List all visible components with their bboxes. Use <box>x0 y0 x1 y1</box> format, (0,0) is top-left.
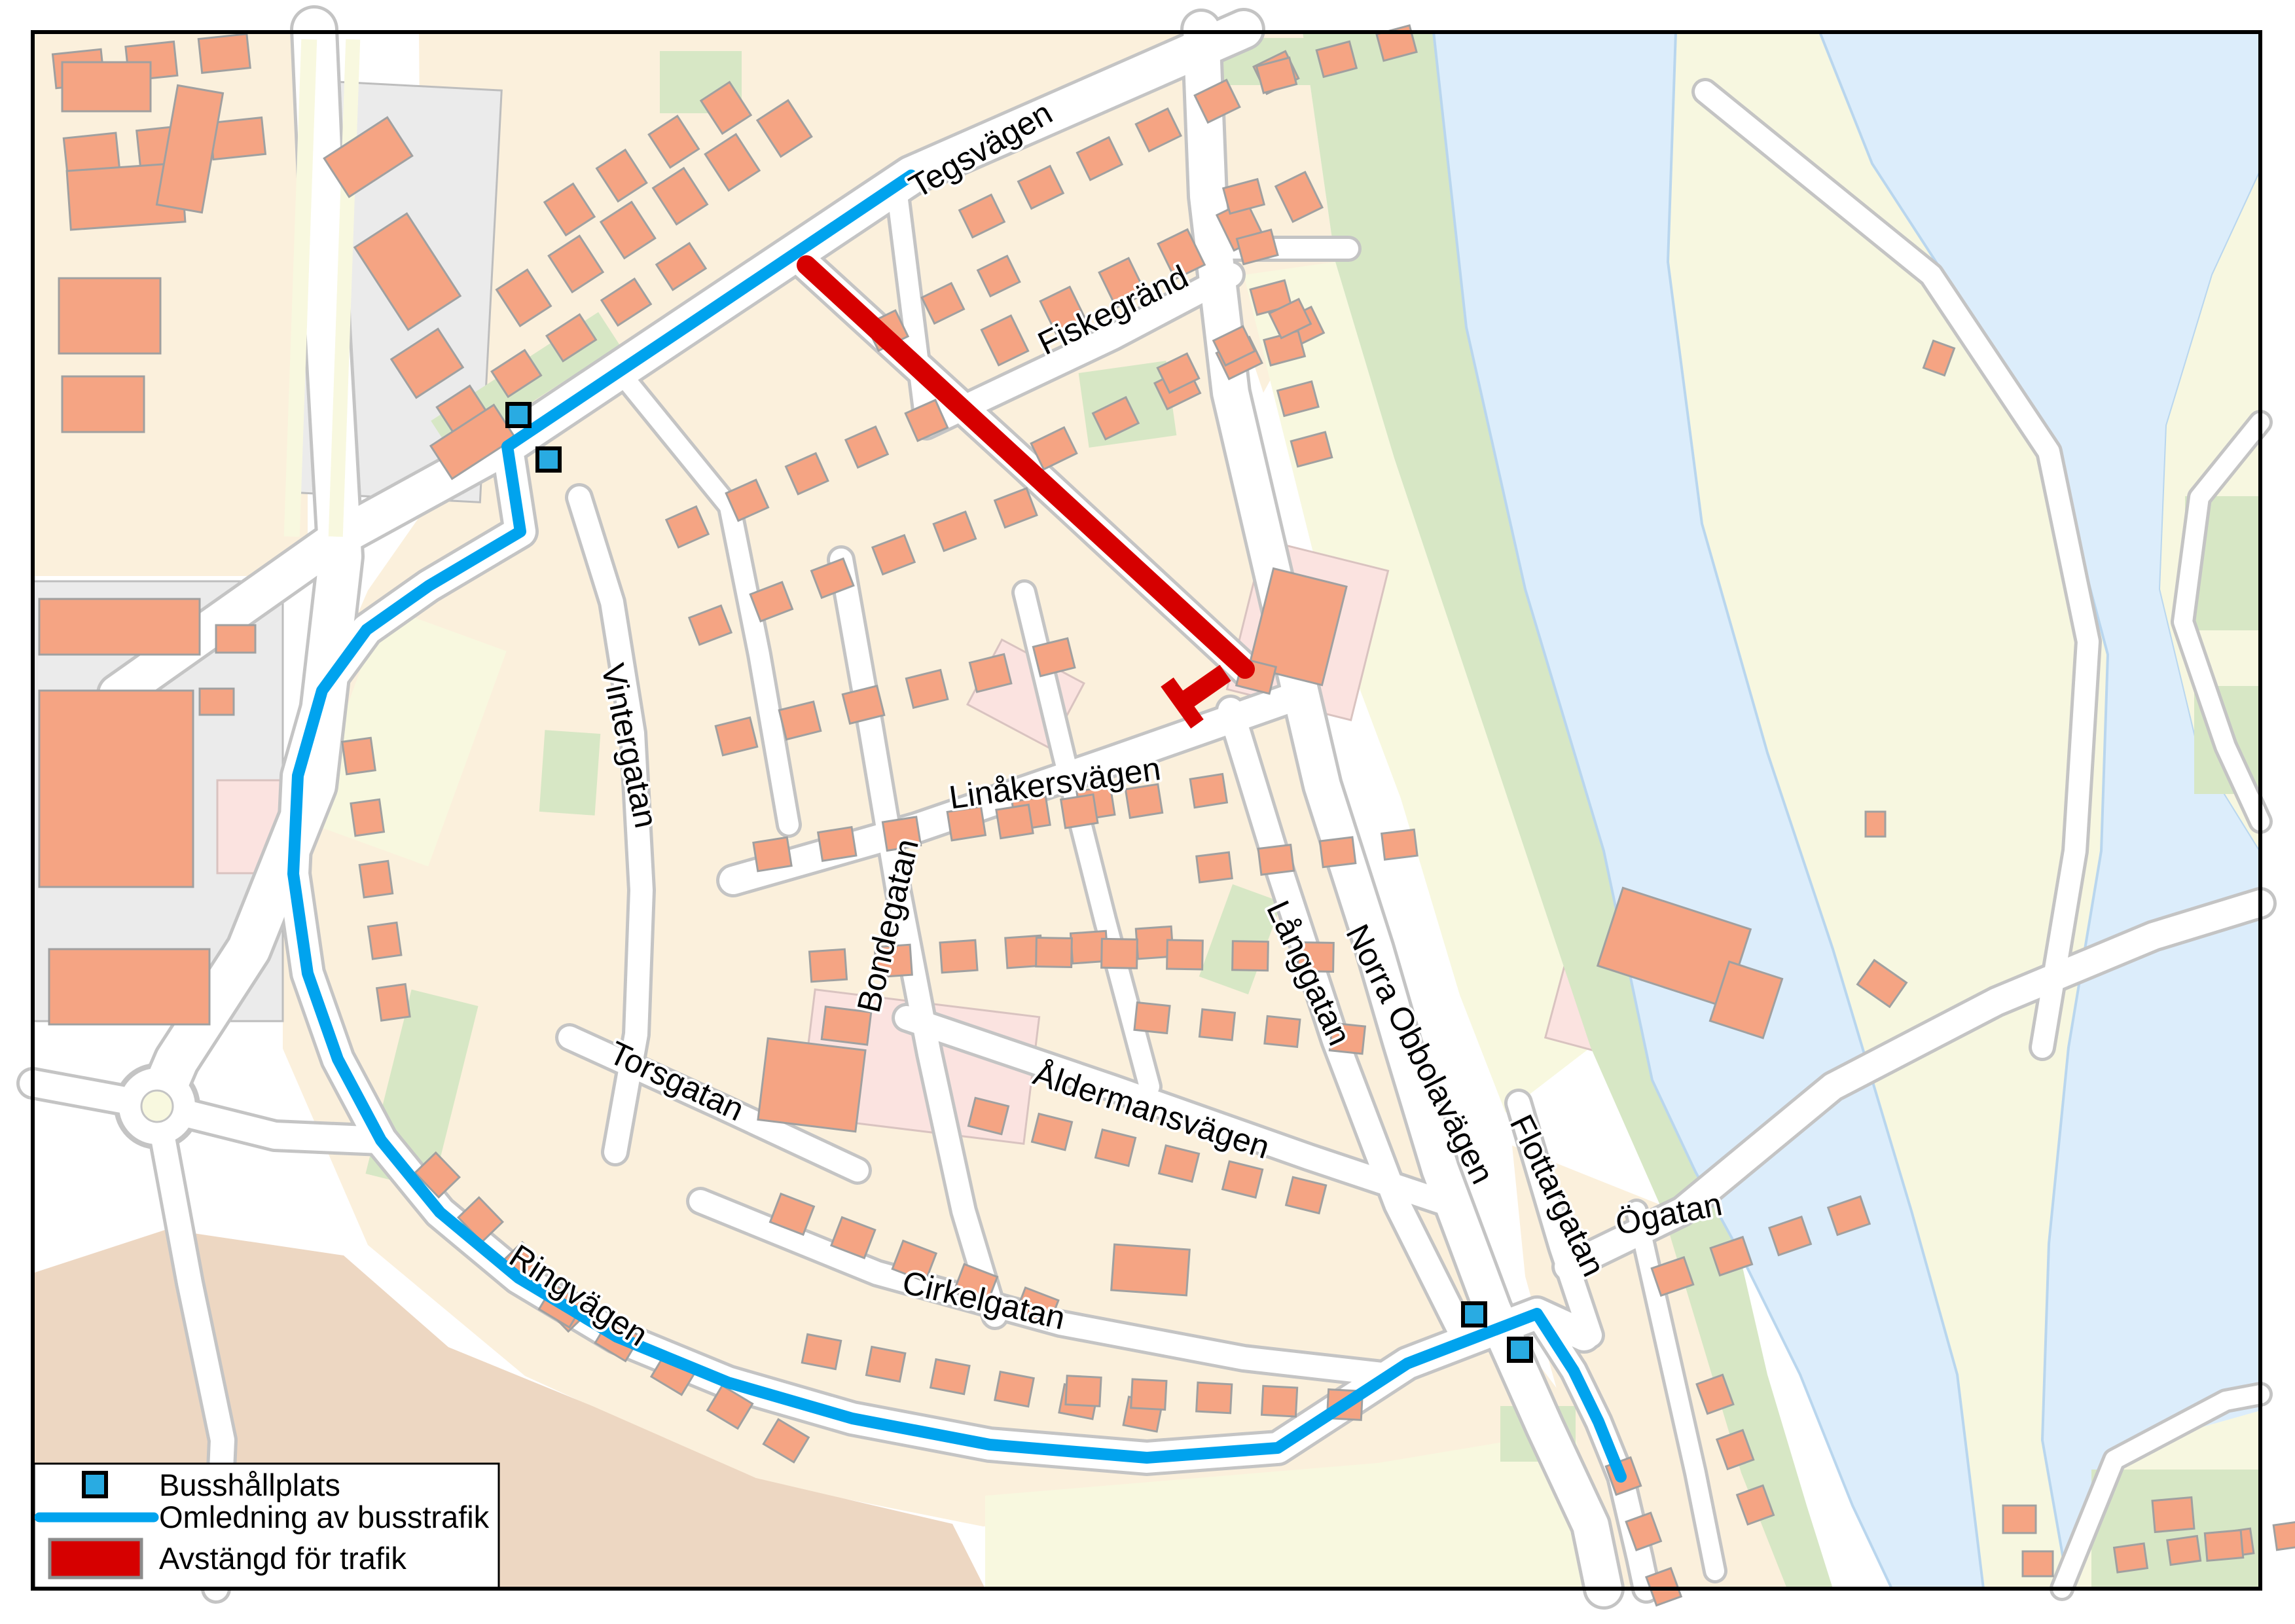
building <box>1134 1003 1170 1034</box>
building <box>1261 1386 1297 1416</box>
legend-item-label: Avstängd för trafik <box>159 1541 407 1576</box>
building <box>200 689 234 715</box>
building <box>2003 1506 2036 1533</box>
building <box>940 940 977 973</box>
building <box>818 827 856 861</box>
building <box>1131 1379 1166 1410</box>
building <box>866 1347 905 1382</box>
building <box>1102 939 1138 968</box>
building <box>1382 829 1418 859</box>
building <box>931 1360 969 1394</box>
building <box>342 738 376 774</box>
bus-stop-marker <box>1509 1339 1531 1361</box>
building <box>1167 940 1203 969</box>
green-area <box>539 730 601 816</box>
building <box>1066 1376 1101 1407</box>
building <box>359 861 393 897</box>
roundabout-island <box>141 1091 173 1122</box>
building <box>2205 1530 2243 1561</box>
bus-stop-marker <box>537 448 560 471</box>
building <box>2152 1497 2194 1532</box>
building <box>39 691 193 887</box>
building <box>996 804 1033 838</box>
legend-item-label: Omledning av busstrafik <box>159 1500 490 1534</box>
building <box>1258 845 1294 875</box>
building <box>2167 1536 2201 1565</box>
legend-closed-swatch <box>50 1540 141 1578</box>
building <box>809 949 846 982</box>
building <box>351 799 384 836</box>
building <box>1866 812 1885 837</box>
building <box>758 1038 865 1131</box>
legend-item-label: Busshållplats <box>159 1468 340 1502</box>
building <box>1197 1382 1232 1413</box>
building <box>1320 837 1356 867</box>
building <box>377 984 410 1020</box>
building <box>62 376 144 432</box>
building <box>198 34 250 73</box>
building <box>2023 1551 2053 1576</box>
building <box>2273 1521 2295 1550</box>
bus-stop-marker <box>1463 1303 1485 1326</box>
building <box>1190 774 1227 807</box>
building <box>2114 1543 2148 1572</box>
building <box>995 1372 1034 1407</box>
traffic-diversion-map: TegsvägenFiskegrändLinåkersvägenVinterga… <box>0 0 2295 1624</box>
building <box>1233 941 1269 971</box>
building <box>39 599 200 655</box>
building <box>1036 938 1072 967</box>
building <box>1265 1016 1300 1047</box>
building <box>59 278 160 353</box>
building <box>368 922 401 959</box>
building <box>62 62 151 111</box>
building <box>753 837 791 871</box>
building <box>1197 852 1233 882</box>
legend-bus-stop-swatch <box>84 1473 106 1496</box>
bus-stop-marker <box>507 404 530 426</box>
building <box>1111 1244 1190 1295</box>
map-page: TegsvägenFiskegrändLinåkersvägenVinterga… <box>0 0 2295 1624</box>
building <box>49 949 209 1024</box>
building <box>216 625 255 653</box>
building <box>822 1007 871 1045</box>
legend: BusshållplatsOmledning av busstrafikAvst… <box>34 1464 499 1588</box>
building <box>1199 1009 1235 1040</box>
building <box>802 1334 840 1369</box>
